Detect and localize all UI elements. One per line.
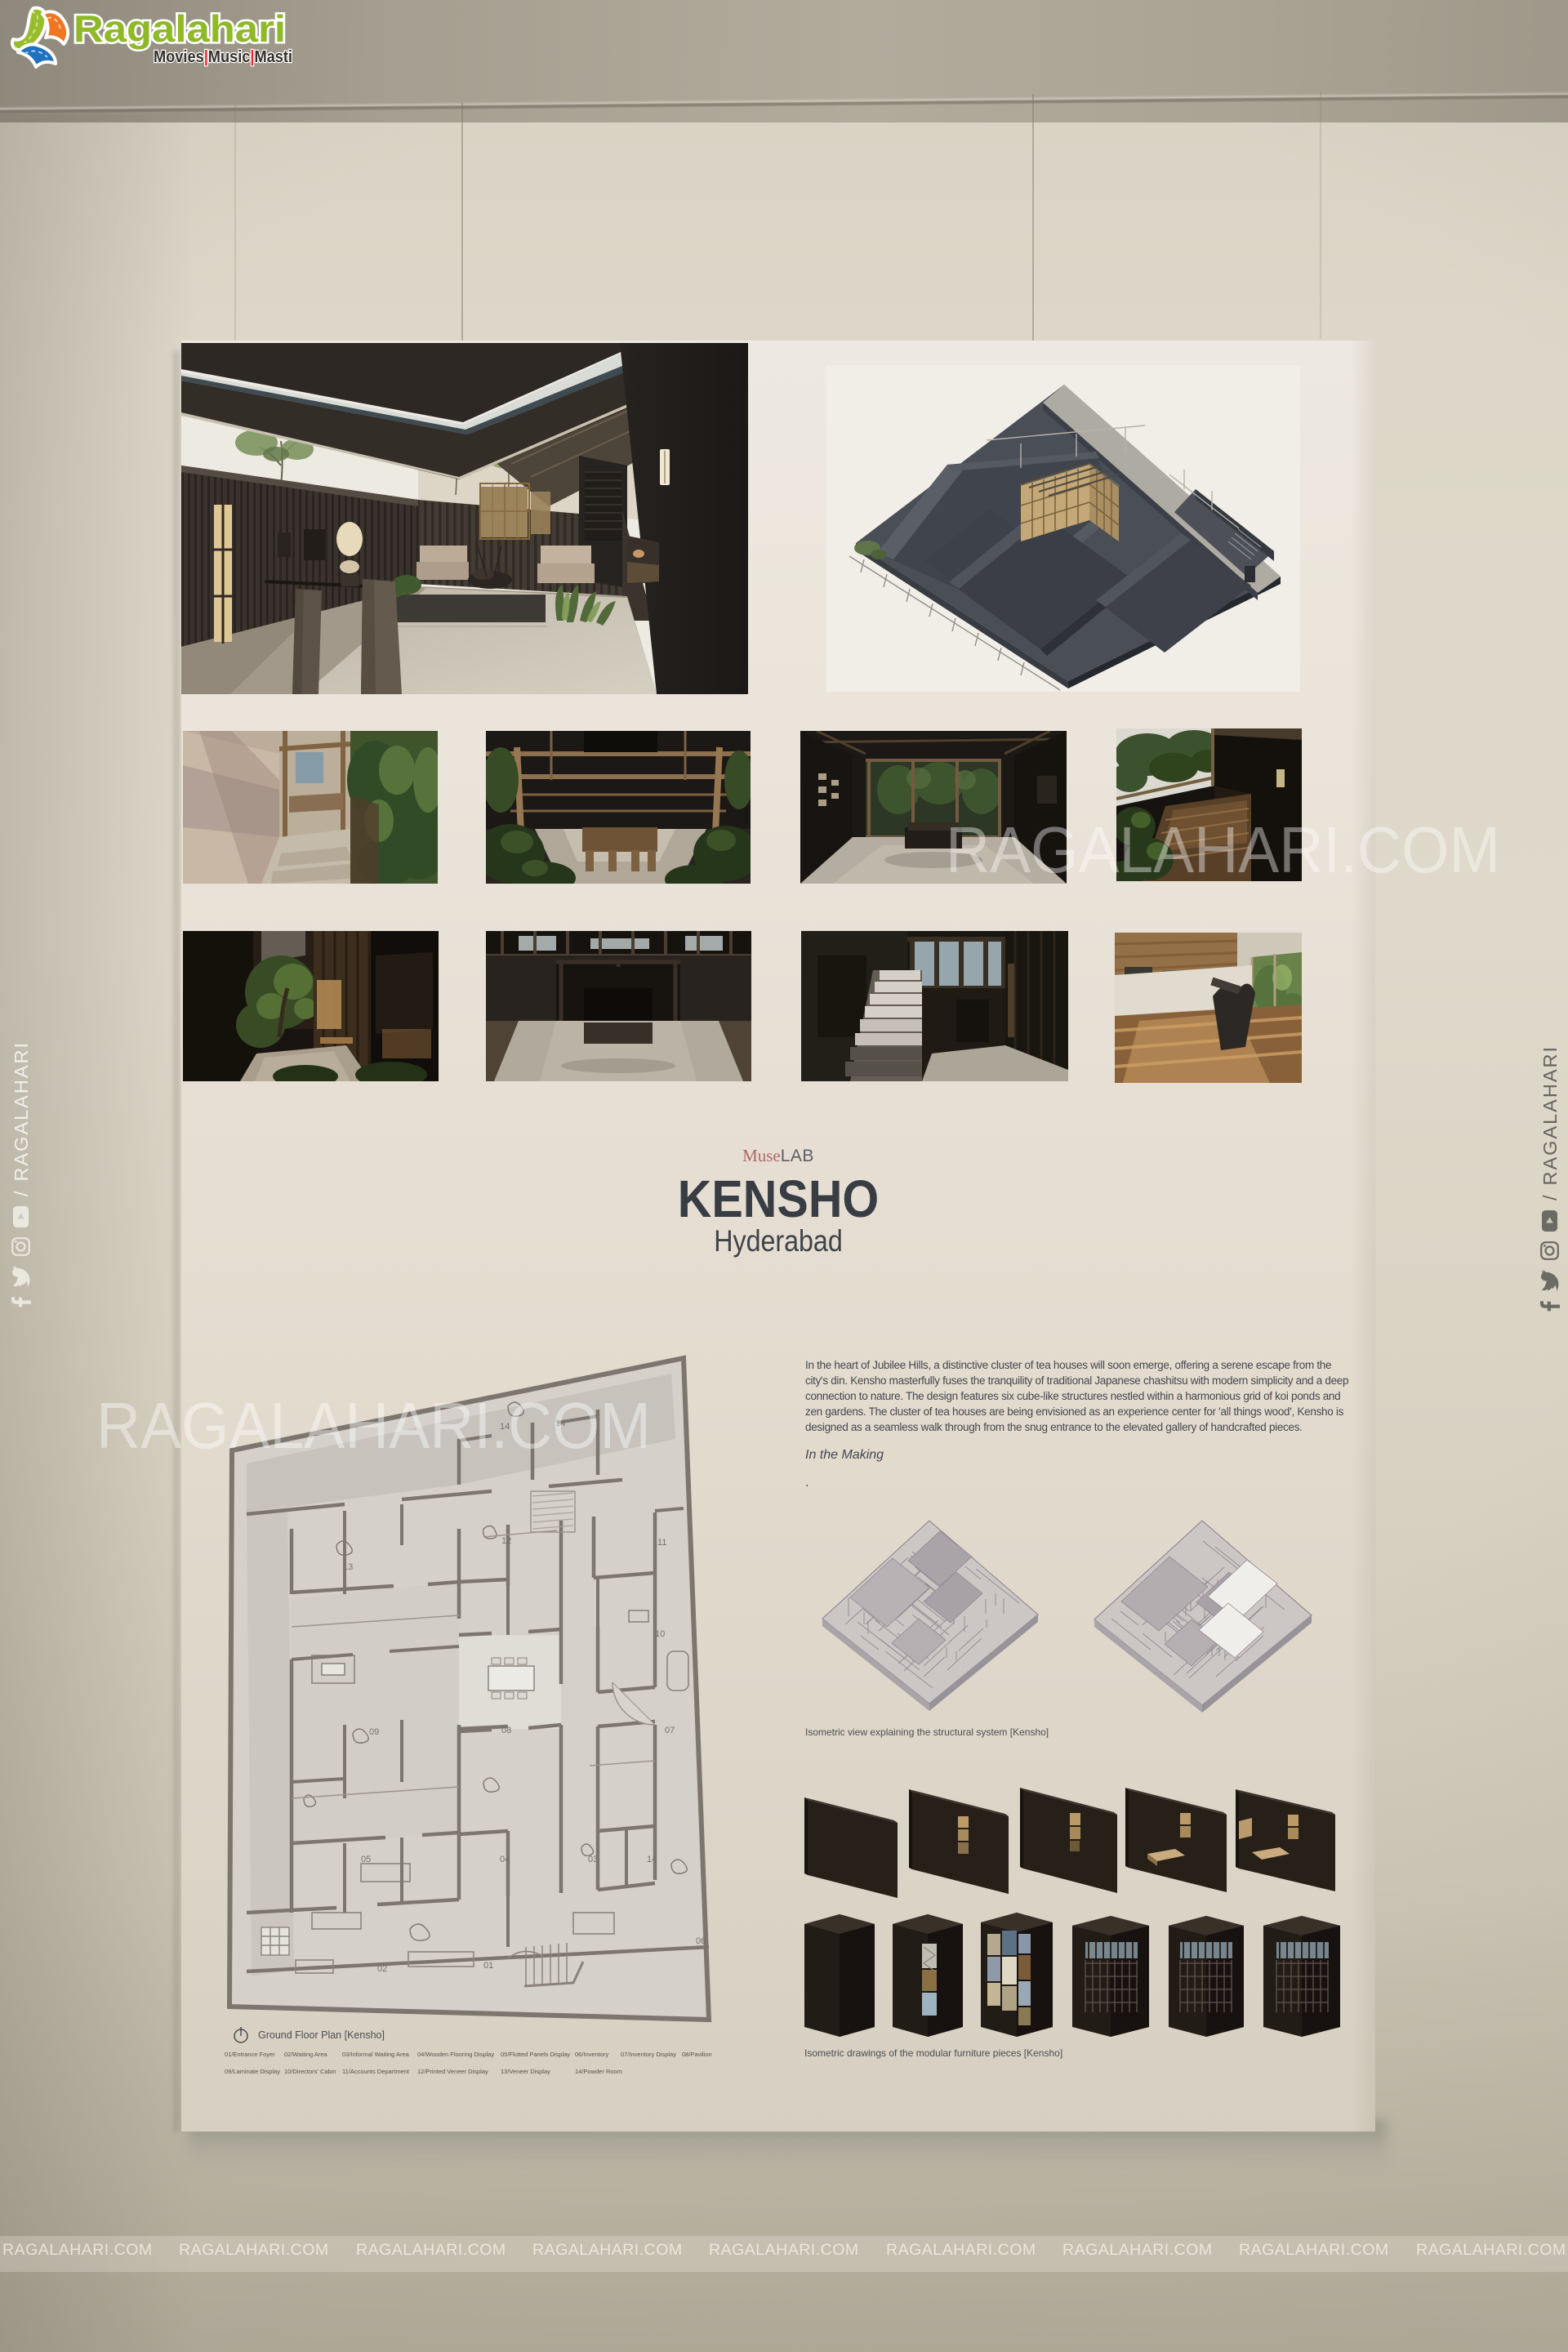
svg-text:07: 07 xyxy=(665,1726,675,1735)
svg-text:10: 10 xyxy=(655,1629,665,1639)
svg-text:02: 02 xyxy=(377,1964,387,1974)
svg-text:04: 04 xyxy=(500,1855,510,1864)
svg-text:05: 05 xyxy=(361,1855,371,1864)
svg-text:11: 11 xyxy=(657,1538,666,1548)
svg-text:Ragalahari: Ragalahari xyxy=(73,7,286,50)
svg-text:08: 08 xyxy=(501,1726,511,1735)
svg-text:06: 06 xyxy=(696,1936,706,1946)
svg-text:Movies|Music|Masti: Movies|Music|Masti xyxy=(154,48,292,66)
svg-text:13: 13 xyxy=(343,1562,353,1572)
svg-text:12: 12 xyxy=(501,1536,511,1546)
svg-text:03: 03 xyxy=(588,1855,598,1864)
svg-text:14: 14 xyxy=(647,1855,657,1864)
svg-text:09: 09 xyxy=(369,1727,379,1737)
svg-text:01: 01 xyxy=(483,1961,493,1971)
